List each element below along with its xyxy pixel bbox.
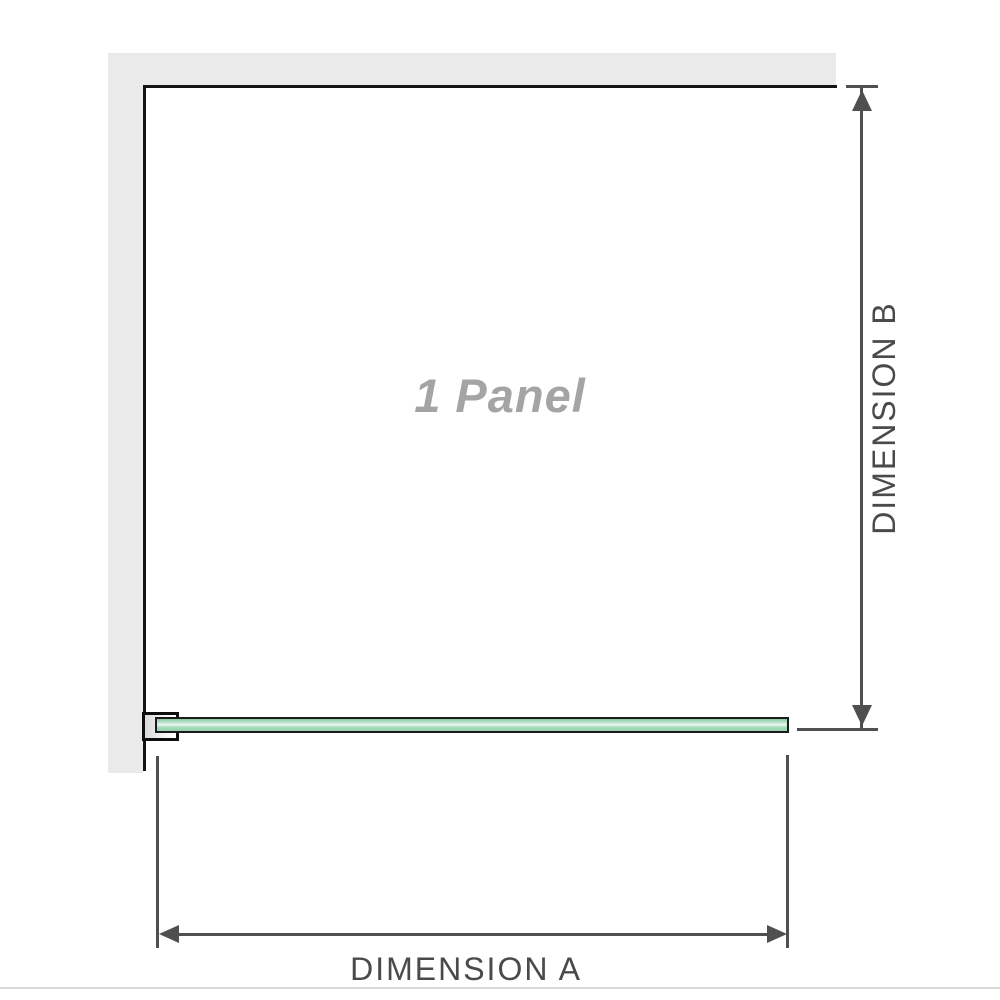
dimension-b-line bbox=[860, 88, 863, 728]
panel-dimension-diagram: 1 Panel DIMENSION B DIMENSION A bbox=[0, 0, 1000, 1000]
arrow-right-icon bbox=[767, 925, 787, 943]
dimension-b-tick-bottom bbox=[797, 728, 878, 731]
dimension-a-label: DIMENSION A bbox=[316, 950, 616, 988]
arrow-down-icon bbox=[852, 705, 872, 726]
glass-panel bbox=[155, 717, 789, 733]
wall-left bbox=[108, 53, 143, 773]
enclosure-outline bbox=[143, 85, 837, 771]
bottom-separator bbox=[0, 987, 1000, 989]
dimension-a-extension-right bbox=[786, 755, 789, 948]
panel-count-watermark: 1 Panel bbox=[340, 368, 660, 428]
wall-top bbox=[108, 53, 836, 87]
dimension-a-extension-left bbox=[156, 756, 159, 948]
dimension-a-line bbox=[173, 933, 773, 936]
arrow-up-icon bbox=[852, 90, 872, 111]
dimension-b-label: DIMENSION B bbox=[865, 268, 903, 568]
arrow-left-icon bbox=[159, 925, 179, 943]
